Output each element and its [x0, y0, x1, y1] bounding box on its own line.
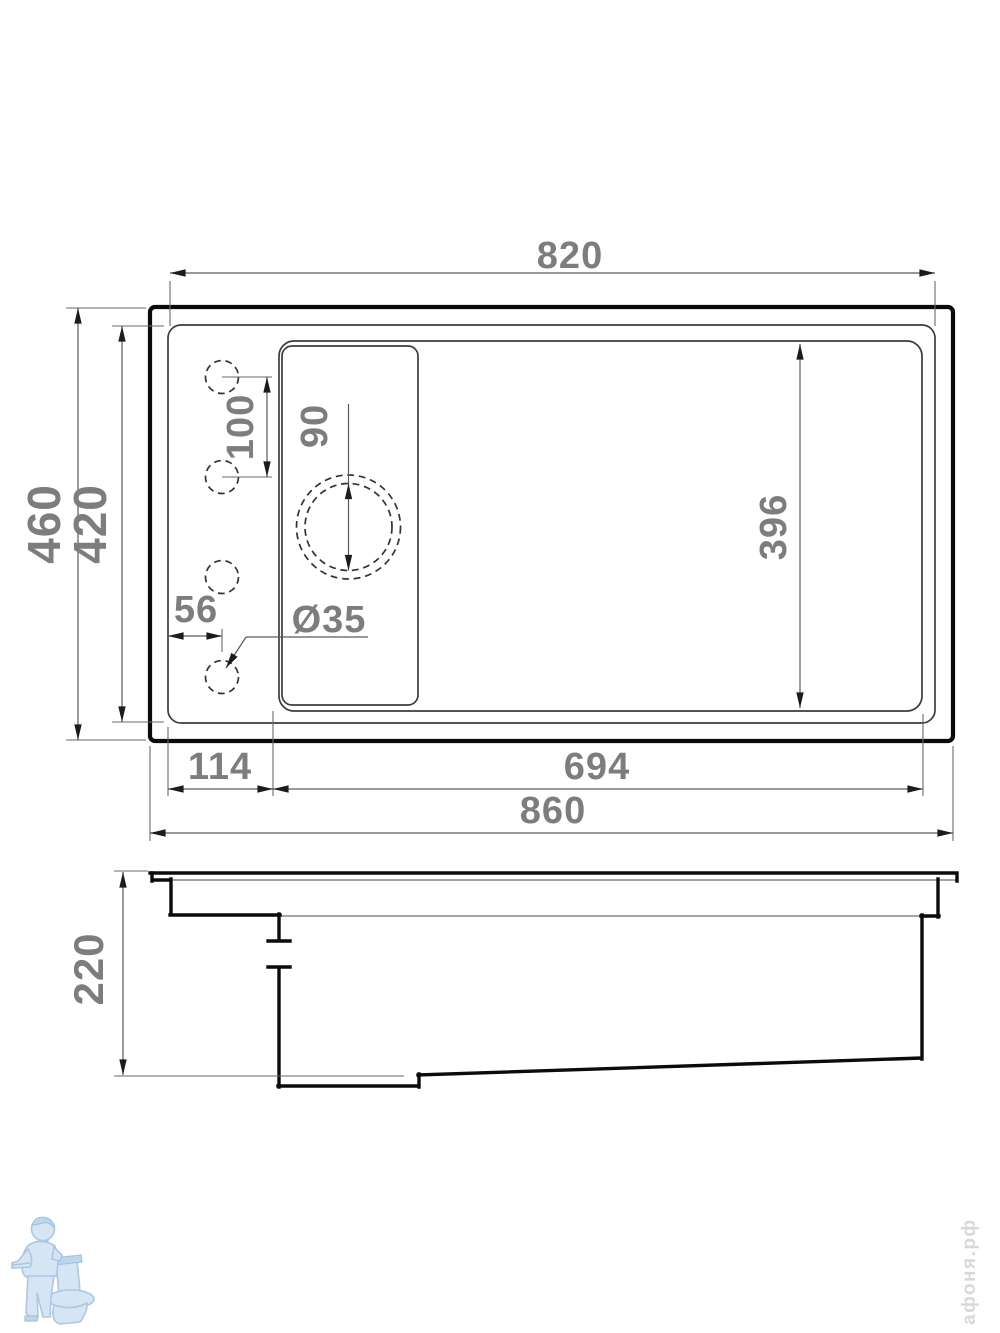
dim-100-label: 100 — [220, 394, 262, 460]
dim-820: 820 — [170, 235, 935, 326]
rim-inner-outline — [168, 325, 935, 723]
faucet-hole-4 — [206, 661, 239, 694]
dim-56-label: 56 — [174, 589, 218, 631]
dim-d35-label: Ø35 — [292, 599, 367, 641]
dim-460-label: 460 — [18, 484, 70, 564]
side-view: 220 — [65, 871, 957, 1087]
plumber-legs — [26, 1276, 54, 1319]
plumber-logo — [12, 1217, 94, 1324]
dim-220-label: 220 — [65, 932, 112, 1005]
dim-396: 396 — [753, 344, 800, 708]
side-hidden-lines — [171, 880, 957, 916]
plumber-shoe — [25, 1316, 38, 1321]
dim-694-label: 694 — [564, 746, 630, 788]
dim-90-label: 90 — [294, 404, 336, 448]
watermark-text: афоня.рф — [959, 1218, 980, 1325]
sink-drawing: 820 460 420 100 90 396 — [0, 0, 1000, 1333]
toilet-tank — [56, 1260, 80, 1294]
dim-820-label: 820 — [537, 235, 603, 277]
dim-90: 90 — [294, 404, 349, 571]
accessory-panel-outline — [282, 346, 418, 705]
dim-396-label: 396 — [753, 494, 795, 560]
dim-56: 56 — [168, 589, 222, 652]
side-left-ledge — [152, 873, 280, 915]
dim-860-label: 860 — [520, 790, 586, 832]
dim-860: 860 — [150, 746, 953, 841]
side-bowl-bottom-profile — [278, 879, 939, 1087]
bowl-outline — [279, 341, 922, 711]
dim-d35: Ø35 — [226, 599, 368, 668]
technical-drawing-page: 820 460 420 100 90 396 — [0, 0, 1000, 1333]
plumber-right-arm — [52, 1247, 62, 1261]
dim-220: 220 — [65, 871, 404, 1076]
side-break-symbol — [268, 941, 290, 967]
dim-114-label: 114 — [188, 746, 252, 788]
dim-694: 694 — [273, 714, 923, 796]
top-view: 820 460 420 100 90 396 — [18, 235, 953, 841]
dim-420-label: 420 — [64, 484, 116, 564]
sink-outer-outline — [150, 307, 953, 741]
